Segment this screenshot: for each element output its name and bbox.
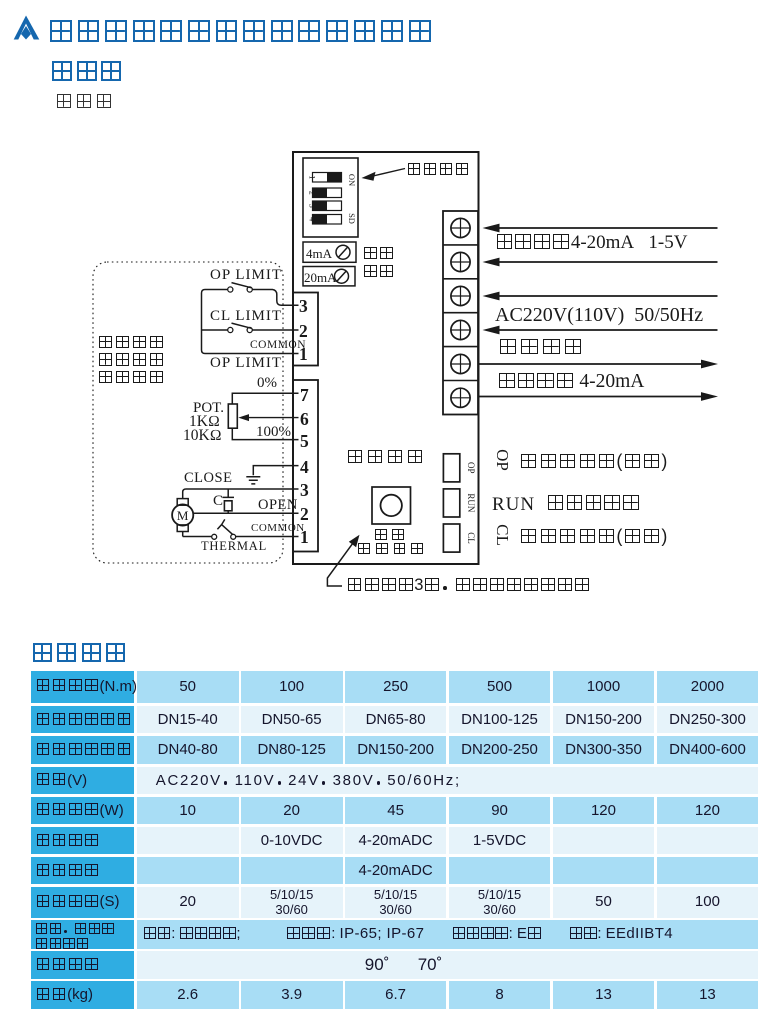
svg-text:CL: CL — [466, 532, 476, 544]
svg-text:2: 2 — [308, 191, 317, 195]
svg-text:SD: SD — [347, 213, 357, 224]
svg-text:OP: OP — [466, 462, 476, 474]
svg-text:M: M — [177, 508, 189, 523]
svg-text:1: 1 — [308, 175, 317, 179]
svg-text:3: 3 — [308, 204, 317, 208]
svg-text:ON: ON — [347, 174, 357, 186]
svg-text:4: 4 — [308, 217, 317, 221]
svg-text:RUN: RUN — [466, 493, 476, 513]
